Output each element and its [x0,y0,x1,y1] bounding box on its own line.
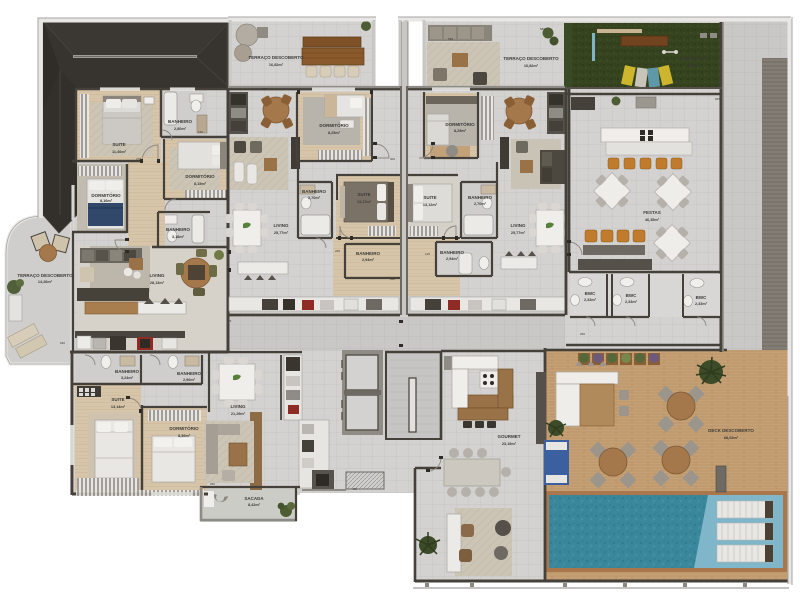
svg-text:2,33m²: 2,33m² [695,302,708,306]
svg-text:13,12m²: 13,12m² [423,203,438,207]
svg-text:SUITE: SUITE [112,142,125,147]
svg-text:2,33m²: 2,33m² [584,298,597,302]
svg-text:25,77m²: 25,77m² [274,231,289,235]
svg-text:280: 280 [262,87,267,91]
svg-text:LIVING: LIVING [230,404,246,409]
svg-text:535: 535 [448,37,453,41]
svg-text:3,24m²: 3,24m² [121,376,134,380]
svg-text:680: 680 [540,27,545,31]
svg-text:13,17m²: 13,17m² [357,200,372,204]
svg-text:TERRAÇO DESCOBERTO: TERRAÇO DESCOBERTO [503,56,559,61]
svg-text:23,19m²: 23,19m² [502,442,517,446]
svg-text:21,29m²: 21,29m² [231,412,246,416]
svg-text:LIVING: LIVING [273,223,289,228]
svg-text:BANHEIRO: BANHEIRO [468,195,493,200]
svg-text:BANHEIRO: BANHEIRO [356,251,381,256]
svg-text:FESTAS: FESTAS [643,210,660,215]
svg-text:68,02m²: 68,02m² [724,436,739,440]
svg-text:BANHEIRO: BANHEIRO [177,371,202,376]
svg-text:150: 150 [198,130,203,134]
svg-text:BANHEIRO: BANHEIRO [440,250,465,255]
svg-text:8,42m²: 8,42m² [248,503,261,507]
svg-text:ESPAÇO FIT: ESPAÇO FIT [681,56,708,61]
svg-text:2,94m²: 2,94m² [446,257,459,261]
svg-text:260: 260 [580,332,585,336]
svg-text:13,14m²: 13,14m² [111,405,126,409]
svg-text:2,96m²: 2,96m² [183,378,196,382]
svg-text:11,46m²: 11,46m² [112,150,127,154]
svg-text:2,80m²: 2,80m² [174,127,187,131]
svg-text:125: 125 [425,252,430,256]
svg-text:46,35m²: 46,35m² [645,218,660,222]
svg-text:DECK DESCOBERTO: DECK DESCOBERTO [708,428,754,433]
svg-text:8,16m²: 8,16m² [100,199,113,203]
svg-text:18,66m²: 18,66m² [687,64,702,68]
svg-text:250: 250 [210,482,215,486]
svg-text:225: 225 [335,249,340,253]
svg-text:260: 260 [390,277,395,281]
svg-text:16,82m²: 16,82m² [524,64,539,68]
svg-text:245: 245 [243,129,248,133]
svg-text:25,77m²: 25,77m² [511,231,526,235]
svg-text:DORMITÓRIO: DORMITÓRIO [91,191,121,198]
svg-text:SUITE: SUITE [357,192,370,197]
svg-text:2,33m²: 2,33m² [625,300,638,304]
svg-text:BWC: BWC [696,295,707,300]
svg-text:TERRAÇO DESCOBERTO: TERRAÇO DESCOBERTO [248,55,304,60]
svg-text:14,26m²: 14,26m² [38,280,53,284]
svg-text:8,25m²: 8,25m² [328,131,341,135]
svg-text:BANHEIRO: BANHEIRO [302,189,327,194]
svg-text:2,94m²: 2,94m² [362,258,375,262]
svg-text:LIVING: LIVING [510,223,526,228]
svg-text:278: 278 [136,157,141,161]
svg-text:300: 300 [390,157,395,161]
svg-text:SUITE: SUITE [423,195,436,200]
svg-text:DORMITÓRIO: DORMITÓRIO [319,121,349,128]
svg-text:DORMITÓRIO: DORMITÓRIO [185,172,215,179]
svg-text:TERRAÇO DESCOBERTO: TERRAÇO DESCOBERTO [17,273,73,278]
svg-text:8,15m²: 8,15m² [194,182,207,186]
svg-text:8,25m²: 8,25m² [454,129,467,133]
svg-text:SACADA: SACADA [244,496,264,501]
svg-text:2,70m²: 2,70m² [474,202,487,206]
svg-text:LIVING: LIVING [149,273,165,278]
svg-text:2,70m²: 2,70m² [308,196,321,200]
svg-text:BANHEIRO: BANHEIRO [115,369,140,374]
svg-text:BANHEIRO: BANHEIRO [168,119,193,124]
svg-text:8,36m²: 8,36m² [178,434,191,438]
svg-text:45: 45 [228,319,232,323]
svg-text:400: 400 [352,487,357,491]
svg-text:640: 640 [60,341,65,345]
svg-text:BWC: BWC [585,291,596,296]
svg-text:GOURMET: GOURMET [498,434,521,439]
svg-text:665: 665 [715,97,720,101]
svg-text:SUITE: SUITE [111,397,124,402]
svg-text:DORMITÓRIO: DORMITÓRIO [169,424,199,431]
svg-text:BANHEIRO: BANHEIRO [166,227,191,232]
svg-text:3,18m²: 3,18m² [172,235,185,239]
svg-text:28,13m²: 28,13m² [150,281,165,285]
svg-text:16,82m²: 16,82m² [269,63,284,67]
svg-text:BWC: BWC [626,293,637,298]
svg-text:DORMITÓRIO: DORMITÓRIO [445,120,475,127]
